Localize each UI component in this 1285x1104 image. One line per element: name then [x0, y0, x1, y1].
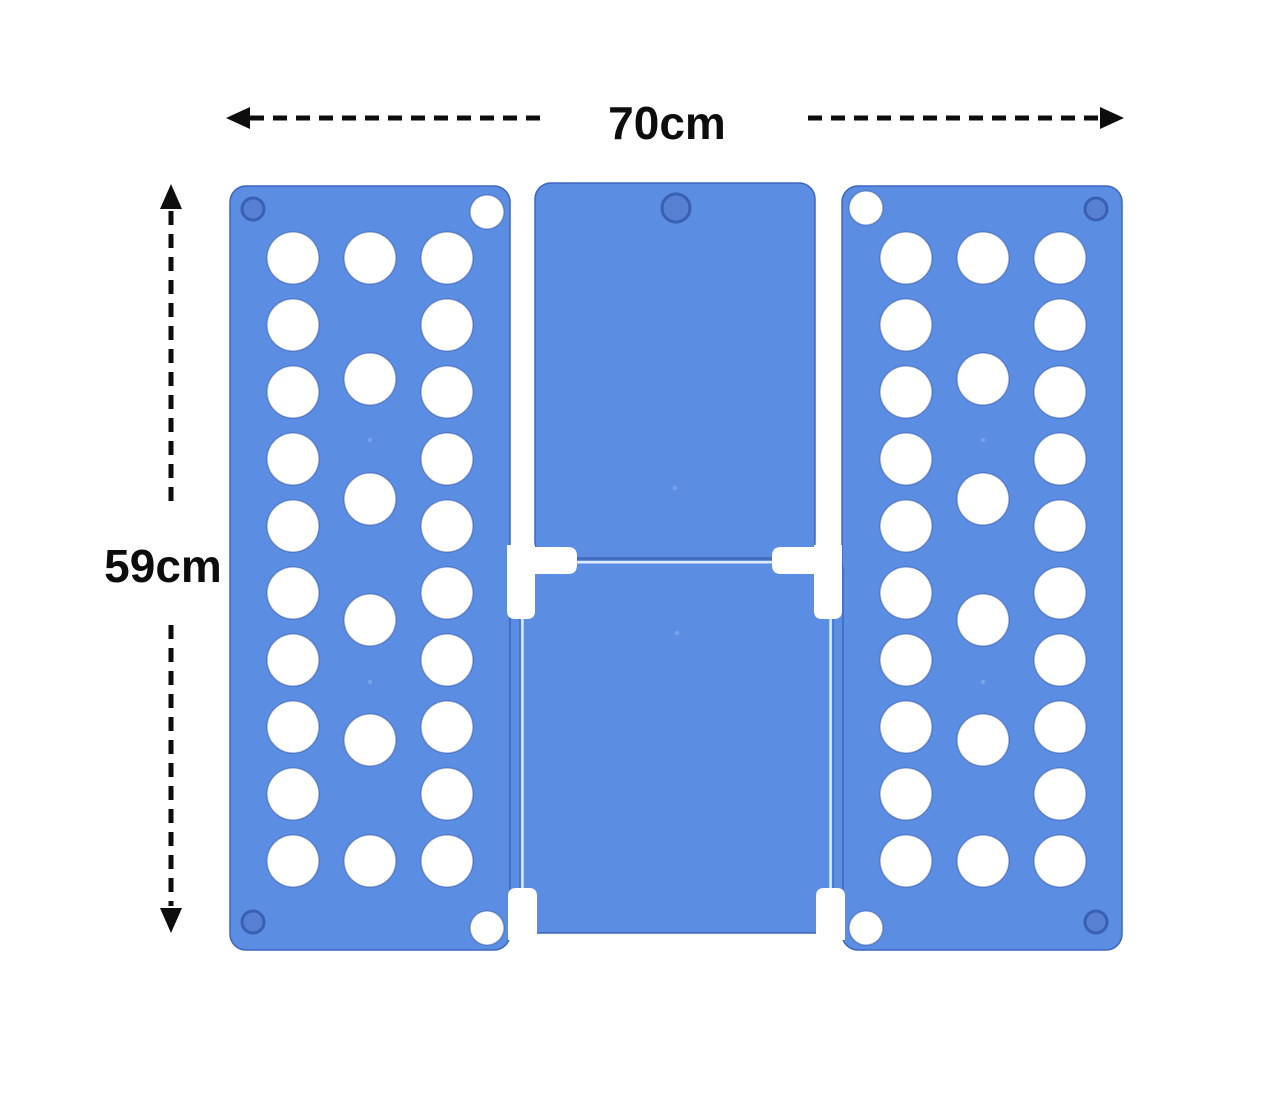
fold-guide-hole: [1034, 567, 1086, 619]
fold-guide-hole: [267, 500, 319, 552]
fold-guide-hole: [880, 634, 932, 686]
right-panel-bottom-recess: [1085, 911, 1107, 933]
fold-guide-hole: [421, 366, 473, 418]
fold-guide-hole: [344, 232, 396, 284]
product-dimension-diagram: 70cm 59cm: [0, 0, 1285, 1104]
fold-guide-hole: [957, 714, 1009, 766]
fold-guide-hole: [344, 353, 396, 405]
fold-guide-hole: [421, 433, 473, 485]
left-panel-bottom-corner-hole: [470, 911, 504, 945]
fold-guide-hole: [1034, 433, 1086, 485]
height-dimension-label: 59cm: [104, 540, 222, 592]
left-panel-top-recess: [242, 198, 264, 220]
fold-guide-hole: [957, 594, 1009, 646]
dashed-arrow-left-icon: [226, 107, 250, 129]
fold-guide-hole: [421, 232, 473, 284]
right-panel-top-corner-hole: [849, 191, 883, 225]
width-dimension: 70cm: [226, 97, 1124, 149]
right-panel-bottom-corner-hole: [849, 911, 883, 945]
left-panel-top-corner-hole: [470, 195, 504, 229]
fold-guide-hole: [267, 567, 319, 619]
fold-guide-hole: [1034, 232, 1086, 284]
fold-guide-hole: [880, 701, 932, 753]
fold-guide-hole: [267, 232, 319, 284]
fold-guide-hole: [267, 835, 319, 887]
right-hinge-notch-arm: [772, 547, 816, 574]
fold-guide-hole: [957, 353, 1009, 405]
fold-guide-hole: [880, 768, 932, 820]
left-hinge-notch: [507, 545, 535, 619]
fold-guide-hole: [421, 701, 473, 753]
left-panel-bottom-recess: [242, 911, 264, 933]
fold-guide-hole: [267, 768, 319, 820]
fold-guide-hole: [421, 567, 473, 619]
dashed-arrow-right-icon: [1100, 107, 1124, 129]
right-panel-top-recess: [1085, 198, 1107, 220]
fold-guide-hole: [880, 299, 932, 351]
bottom-left-notch: [508, 888, 537, 940]
fold-guide-hole: [957, 473, 1009, 525]
dashed-arrow-down-icon: [160, 908, 182, 933]
dashed-arrow-up-icon: [160, 184, 182, 209]
mold-mark: [673, 486, 677, 490]
fold-guide-hole: [421, 634, 473, 686]
fold-guide-hole: [1034, 634, 1086, 686]
fold-guide-hole: [957, 835, 1009, 887]
left-hinge-notch-arm: [533, 547, 577, 574]
fold-guide-hole: [880, 433, 932, 485]
fold-guide-hole: [1034, 768, 1086, 820]
fold-guide-hole: [957, 232, 1009, 284]
fold-guide-hole: [267, 701, 319, 753]
fold-guide-hole: [267, 299, 319, 351]
right-hinge-notch: [814, 545, 842, 619]
left-panel: [230, 186, 510, 950]
fold-guide-hole: [421, 299, 473, 351]
fold-guide-hole: [344, 835, 396, 887]
mold-mark: [368, 438, 372, 442]
height-dimension: 59cm: [104, 184, 222, 933]
width-dimension-label: 70cm: [608, 97, 726, 149]
center-top-flap-body: [535, 183, 815, 558]
fold-guide-hole: [1034, 299, 1086, 351]
fold-guide-hole: [267, 366, 319, 418]
center-top-flap: [535, 183, 815, 558]
fold-guide-hole: [880, 366, 932, 418]
mold-mark: [981, 438, 985, 442]
mold-mark: [675, 631, 679, 635]
fold-guide-hole: [1034, 701, 1086, 753]
fold-guide-hole: [421, 500, 473, 552]
fold-guide-hole: [344, 473, 396, 525]
fold-guide-hole: [267, 634, 319, 686]
top-flap-recess: [662, 194, 690, 222]
center-bottom-panel: [510, 556, 843, 933]
fold-guide-hole: [267, 433, 319, 485]
center-bottom-body: [510, 556, 843, 933]
folding-board-illustration: 70cm 59cm: [0, 0, 1285, 1104]
right-panel: [842, 186, 1122, 950]
fold-guide-hole: [880, 835, 932, 887]
fold-guide-hole: [880, 567, 932, 619]
fold-guide-hole: [421, 835, 473, 887]
fold-guide-hole: [880, 232, 932, 284]
fold-guide-hole: [880, 500, 932, 552]
mold-mark: [368, 680, 372, 684]
fold-guide-hole: [1034, 366, 1086, 418]
fold-guide-hole: [1034, 500, 1086, 552]
bottom-right-notch: [816, 888, 845, 940]
fold-guide-hole: [344, 714, 396, 766]
fold-guide-hole: [1034, 835, 1086, 887]
fold-guide-hole: [421, 768, 473, 820]
fold-guide-hole: [344, 594, 396, 646]
mold-mark: [981, 680, 985, 684]
